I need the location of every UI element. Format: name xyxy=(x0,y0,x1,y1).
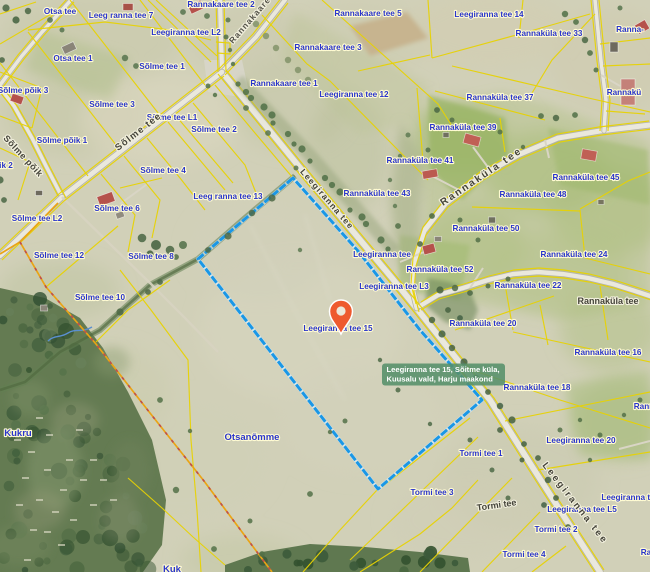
svg-text:Rannaküla tee 45: Rannaküla tee 45 xyxy=(553,173,620,182)
svg-text:ik 2: ik 2 xyxy=(0,161,13,170)
svg-text:Sõlme tee 6: Sõlme tee 6 xyxy=(94,204,140,213)
svg-text:Sõlme põik 3: Sõlme põik 3 xyxy=(0,86,49,95)
svg-text:Otsa tee: Otsa tee xyxy=(44,7,77,16)
svg-text:Sõlme tee 12: Sõlme tee 12 xyxy=(34,251,85,260)
svg-text:Leegiranna tee 15, Sõitme küla: Leegiranna tee 15, Sõitme küla, xyxy=(387,365,500,374)
svg-text:Rannakaare tee 2: Rannakaare tee 2 xyxy=(187,0,255,9)
svg-text:Sõlme tee L2: Sõlme tee L2 xyxy=(12,214,63,223)
svg-text:Sõlme tee 1: Sõlme tee 1 xyxy=(139,62,185,71)
svg-text:Leegiranna te: Leegiranna te xyxy=(601,493,650,502)
svg-text:Tormi tee 2: Tormi tee 2 xyxy=(534,525,578,534)
svg-text:Rannaküla tee 16: Rannaküla tee 16 xyxy=(575,348,642,357)
svg-text:Rannaküla tee 22: Rannaküla tee 22 xyxy=(495,281,562,290)
svg-text:Rannaküla tee 33: Rannaküla tee 33 xyxy=(516,29,583,38)
svg-text:Rannakaare tee 5: Rannakaare tee 5 xyxy=(334,9,402,18)
svg-text:Sõlme põik 1: Sõlme põik 1 xyxy=(37,136,88,145)
svg-text:Otsa tee 1: Otsa tee 1 xyxy=(53,54,93,63)
svg-text:Rannaküla tee 20: Rannaküla tee 20 xyxy=(450,319,517,328)
svg-text:Leeg ranna tee 13: Leeg ranna tee 13 xyxy=(193,192,263,201)
svg-text:Rannaküla tee 48: Rannaküla tee 48 xyxy=(500,190,567,199)
svg-text:Rannaküla tee 18: Rannaküla tee 18 xyxy=(504,383,571,392)
svg-text:Rannaküla tee 52: Rannaküla tee 52 xyxy=(407,265,474,274)
svg-text:Rannaküla tee 43: Rannaküla tee 43 xyxy=(344,189,411,198)
svg-text:Sõlme tee 2: Sõlme tee 2 xyxy=(191,125,237,134)
svg-text:Sõlme tee 8: Sõlme tee 8 xyxy=(128,252,174,261)
svg-text:Rannaküla tee 39: Rannaküla tee 39 xyxy=(430,123,497,132)
svg-text:Rannakü: Rannakü xyxy=(607,88,642,97)
svg-text:Kuk: Kuk xyxy=(163,564,182,572)
svg-text:Leegiranna tee 12: Leegiranna tee 12 xyxy=(319,90,389,99)
svg-text:Sõlme tee 4: Sõlme tee 4 xyxy=(140,166,186,175)
svg-text:Sõlme tee 10: Sõlme tee 10 xyxy=(75,293,126,302)
svg-text:Leeg ranna tee 7: Leeg ranna tee 7 xyxy=(89,11,154,20)
svg-text:Leegiranna tee: Leegiranna tee xyxy=(353,250,411,259)
svg-text:Kuusalu vald, Harju maakond: Kuusalu vald, Harju maakond xyxy=(387,374,494,383)
svg-text:Leegiranna tee 14: Leegiranna tee 14 xyxy=(454,10,524,19)
svg-text:Rannaküla tee 37: Rannaküla tee 37 xyxy=(467,93,534,102)
svg-text:Tormi tee 4: Tormi tee 4 xyxy=(502,550,546,559)
svg-text:Ranna-: Ranna- xyxy=(616,25,644,34)
svg-text:Tormi tee 1: Tormi tee 1 xyxy=(459,449,503,458)
svg-text:Ra: Ra xyxy=(641,548,650,557)
svg-text:Leegiranna tee L2: Leegiranna tee L2 xyxy=(151,28,221,37)
svg-text:Leegiranna tee 20: Leegiranna tee 20 xyxy=(546,436,616,445)
svg-text:Rannaküla tee: Rannaküla tee xyxy=(577,296,638,306)
svg-text:Tormi tee 3: Tormi tee 3 xyxy=(410,488,454,497)
svg-text:Otsanõmme: Otsanõmme xyxy=(225,432,280,443)
svg-text:Rannaküla tee 24: Rannaküla tee 24 xyxy=(541,250,608,259)
svg-text:Kukru: Kukru xyxy=(4,428,32,439)
svg-text:Rannakaare tee 3: Rannakaare tee 3 xyxy=(294,43,362,52)
svg-text:Rannaküla tee 50: Rannaküla tee 50 xyxy=(453,224,520,233)
svg-text:Rannaküla tee 41: Rannaküla tee 41 xyxy=(387,156,454,165)
svg-text:Rann: Rann xyxy=(634,402,650,411)
svg-text:Sõlme tee 3: Sõlme tee 3 xyxy=(89,100,135,109)
svg-text:Leegiranna tee L3: Leegiranna tee L3 xyxy=(359,282,429,291)
svg-text:Rannakaare tee 1: Rannakaare tee 1 xyxy=(250,79,318,88)
